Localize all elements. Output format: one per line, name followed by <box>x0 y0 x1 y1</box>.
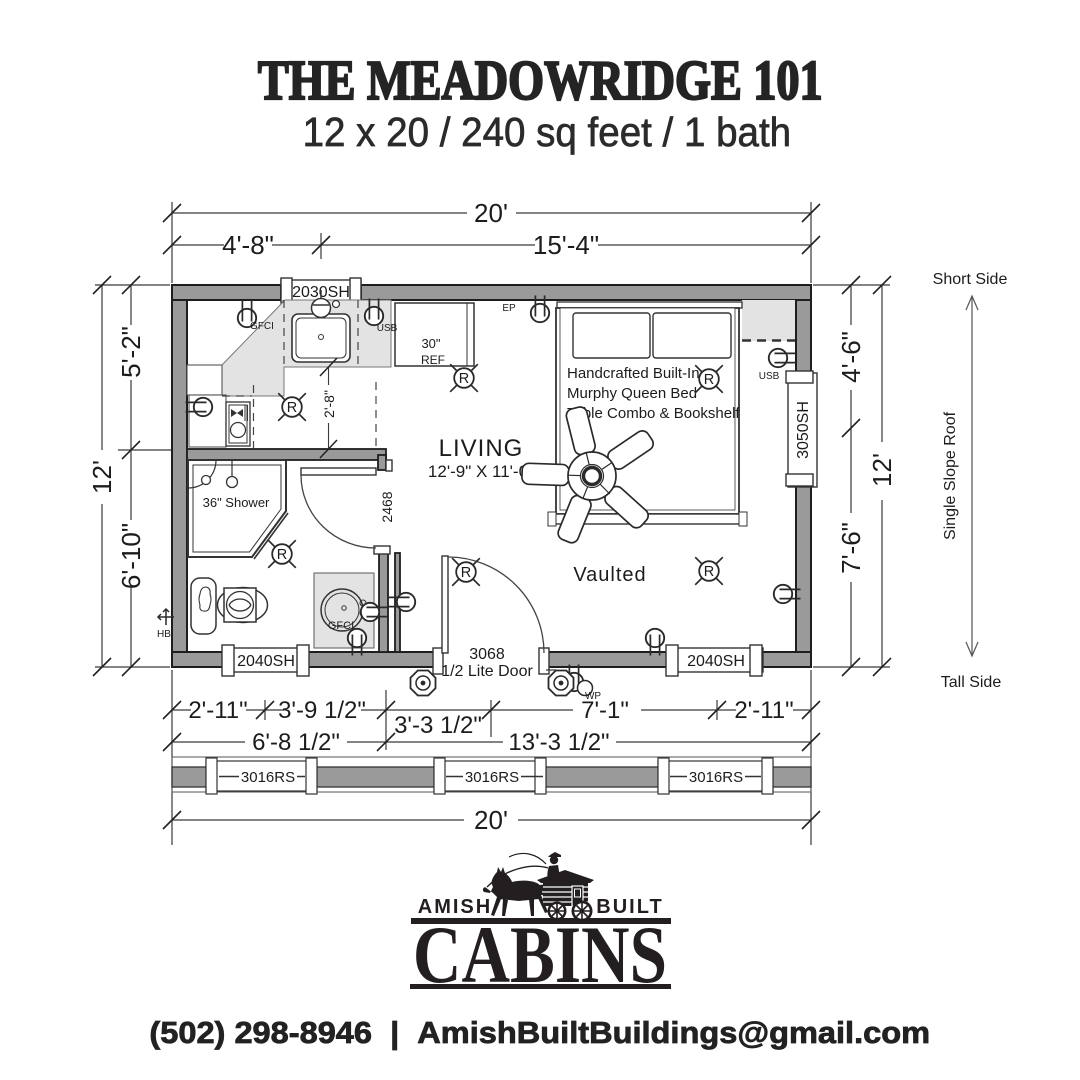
svg-text:36" Shower: 36" Shower <box>203 495 270 510</box>
svg-text:Single Slope Roof: Single Slope Roof <box>942 411 959 540</box>
svg-text:3016RS: 3016RS <box>689 769 743 786</box>
svg-text:USB: USB <box>759 371 780 382</box>
svg-text:GFCI: GFCI <box>328 620 354 632</box>
svg-text:HB: HB <box>157 629 171 640</box>
svg-text:12': 12' <box>867 453 897 487</box>
svg-text:LIVING: LIVING <box>439 435 524 462</box>
svg-text:12'-9" X 11'-0": 12'-9" X 11'-0" <box>428 462 534 481</box>
svg-text:3050SH: 3050SH <box>795 401 812 459</box>
svg-text:GFCI: GFCI <box>250 321 274 332</box>
svg-text:3016RS: 3016RS <box>241 769 295 786</box>
svg-text:WP: WP <box>585 691 601 702</box>
svg-text:EP: EP <box>502 303 516 314</box>
svg-text:2'-8": 2'-8" <box>321 390 337 418</box>
svg-text:Handcrafted Built-In: Handcrafted Built-In <box>567 365 700 382</box>
svg-text:15'-4": 15'-4" <box>533 230 599 260</box>
svg-text:13'-3 1/2": 13'-3 1/2" <box>508 729 609 756</box>
svg-text:Murphy Queen Bed: Murphy Queen Bed <box>567 385 697 402</box>
svg-text:4'-6": 4'-6" <box>836 331 866 383</box>
svg-text:3'-9 1/2": 3'-9 1/2" <box>278 697 366 724</box>
svg-text:6'-10": 6'-10" <box>116 523 146 589</box>
svg-text:Table Combo & Bookshelf: Table Combo & Bookshelf <box>567 405 740 422</box>
svg-text:5'-2": 5'-2" <box>116 326 146 378</box>
svg-text:3'-3 1/2": 3'-3 1/2" <box>394 712 482 739</box>
svg-text:30": 30" <box>421 336 440 351</box>
svg-text:20': 20' <box>474 198 508 228</box>
svg-text:2'-11": 2'-11" <box>734 697 793 724</box>
svg-text:3016RS: 3016RS <box>465 769 519 786</box>
svg-text:7'-6": 7'-6" <box>836 522 866 574</box>
svg-text:2468: 2468 <box>379 491 395 522</box>
svg-text:2'-11": 2'-11" <box>188 697 247 724</box>
svg-text:Short Side: Short Side <box>933 271 1008 288</box>
svg-text:6'-8 1/2": 6'-8 1/2" <box>252 729 340 756</box>
svg-text:USB: USB <box>377 323 398 334</box>
svg-text:4'-8": 4'-8" <box>222 230 274 260</box>
svg-text:2040SH: 2040SH <box>687 653 745 670</box>
svg-text:Vaulted: Vaulted <box>573 564 646 586</box>
svg-text:20': 20' <box>474 805 508 835</box>
svg-text:REF: REF <box>421 353 445 367</box>
svg-text:2040SH: 2040SH <box>237 653 295 670</box>
svg-text:12': 12' <box>87 460 117 494</box>
svg-text:Tall Side: Tall Side <box>941 674 1002 691</box>
svg-text:1/2 Lite Door: 1/2 Lite Door <box>441 663 533 680</box>
svg-text:3068: 3068 <box>469 646 505 663</box>
